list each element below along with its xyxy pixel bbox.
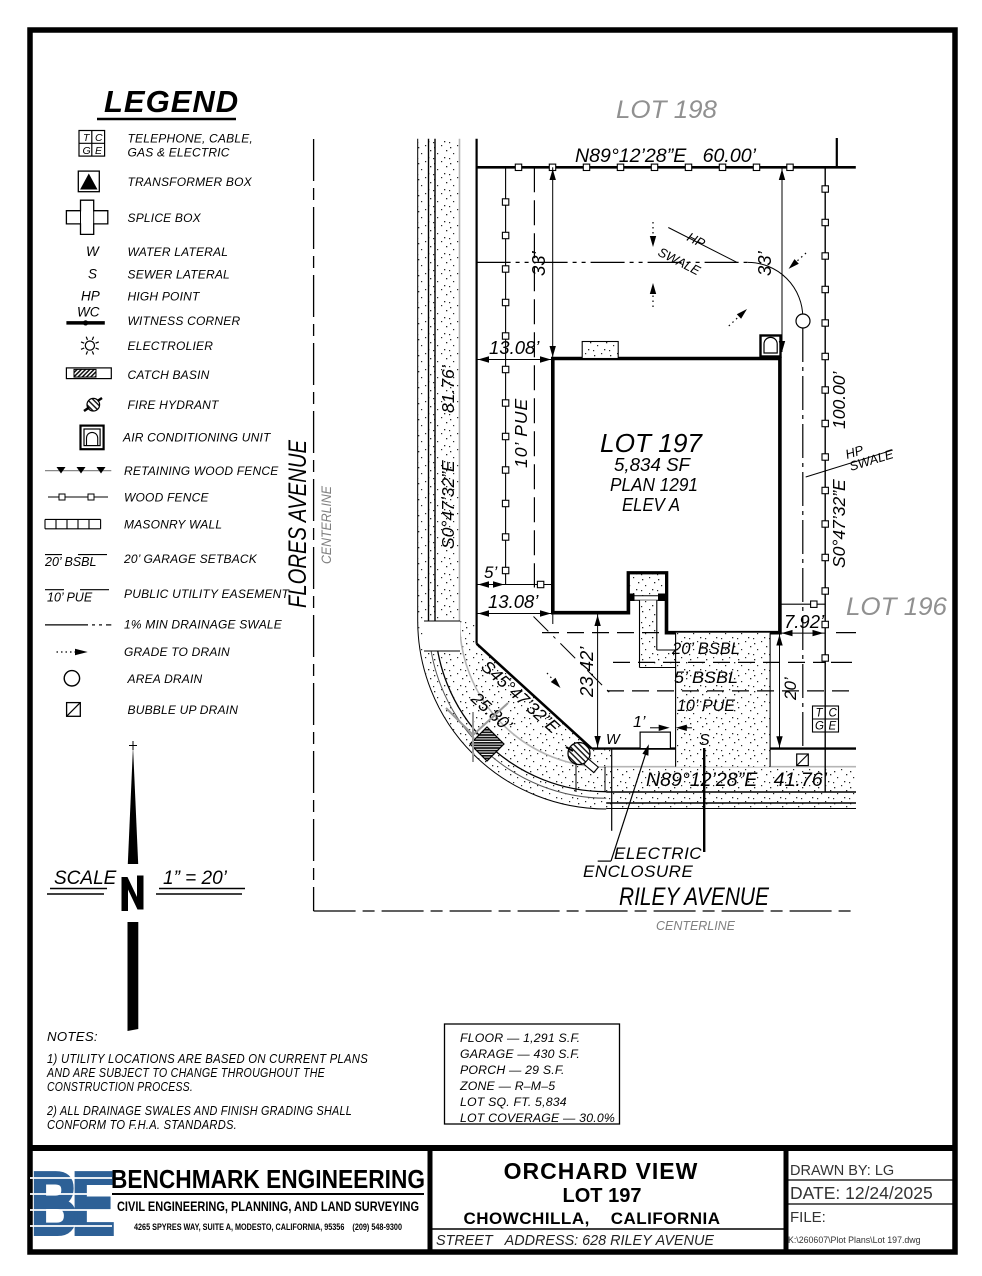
svg-text:CENTERLINE: CENTERLINE xyxy=(319,485,334,564)
svg-text:PORCH — 29 S.F.: PORCH — 29 S.F. xyxy=(460,1063,565,1077)
svg-text:GRADE TO DRAIN: GRADE TO DRAIN xyxy=(124,645,230,659)
svg-text:4265 SPYRES WAY, SUITE A, MODE: 4265 SPYRES WAY, SUITE A, MODESTO, CALIF… xyxy=(134,1222,402,1233)
svg-text:S: S xyxy=(88,267,97,282)
svg-text:LOT COVERAGE — 30.0%: LOT COVERAGE — 30.0% xyxy=(460,1111,615,1125)
svg-text:DATE: 12/24/2025: DATE: 12/24/2025 xyxy=(790,1183,933,1203)
svg-text:BUBBLE UP DRAIN: BUBBLE UP DRAIN xyxy=(128,703,239,717)
svg-text:NOTES:: NOTES: xyxy=(47,1029,98,1044)
svg-text:13.08’: 13.08’ xyxy=(488,591,539,612)
svg-text:7.92’: 7.92’ xyxy=(784,611,825,632)
svg-text:BE: BE xyxy=(31,1154,113,1253)
svg-text:TELEPHONE, CABLE,: TELEPHONE, CABLE, xyxy=(128,132,253,146)
svg-text:TRANSFORMER BOX: TRANSFORMER BOX xyxy=(128,175,253,189)
svg-text:1% MIN DRAINAGE SWALE: 1% MIN DRAINAGE SWALE xyxy=(124,618,283,632)
svg-text:ELEV A: ELEV A xyxy=(622,494,680,515)
svg-text:FILE:: FILE: xyxy=(790,1209,826,1226)
svg-text:81.76’: 81.76’ xyxy=(438,364,458,413)
svg-text:S0°47’32”E: S0°47’32”E xyxy=(438,460,458,549)
svg-text:S0°47’32”E: S0°47’32”E xyxy=(829,479,849,568)
svg-text:LOT 196: LOT 196 xyxy=(846,593,947,621)
svg-text:1” = 20’: 1” = 20’ xyxy=(163,868,228,889)
svg-text:N89°12’28”E 60.00’: N89°12’28”E 60.00’ xyxy=(575,146,757,167)
svg-text:ORCHARD VIEW: ORCHARD VIEW xyxy=(504,1158,699,1184)
svg-text:LOT 197: LOT 197 xyxy=(563,1185,642,1207)
svg-text:1) UTILITY LOCATIONS ARE B: 1) UTILITY LOCATIONS ARE BASED ON CURREN… xyxy=(47,1051,368,1066)
svg-text:PLAN 1291: PLAN 1291 xyxy=(610,474,698,495)
svg-text:E: E xyxy=(95,145,103,157)
svg-text:WOOD FENCE: WOOD FENCE xyxy=(124,491,209,505)
svg-text:WC: WC xyxy=(77,305,100,320)
svg-text:BENCHMARK ENGINEERING: BENCHMARK ENGINEERING xyxy=(111,1166,425,1194)
svg-text:RETAINING WOOD FENCE: RETAINING WOOD FENCE xyxy=(124,464,279,478)
svg-text:33’: 33’ xyxy=(754,250,775,276)
svg-text:20’: 20’ xyxy=(781,677,800,701)
svg-text:20’ BSBL: 20’ BSBL xyxy=(671,639,740,658)
svg-text:100.00’: 100.00’ xyxy=(829,370,849,429)
svg-text:W: W xyxy=(86,244,100,259)
svg-text:W: W xyxy=(606,732,621,748)
svg-text:K:\260607\Plot Plans\Lot 197: K:\260607\Plot Plans\Lot 197.dwg xyxy=(788,1235,921,1245)
svg-text:10’ PUE: 10’ PUE xyxy=(511,398,531,468)
svg-text:GARAGE — 430 S.F.: GARAGE — 430 S.F. xyxy=(460,1047,580,1061)
svg-text:SEWER LATERAL: SEWER LATERAL xyxy=(128,268,230,282)
svg-text:CONSTRUCTION PROCESS.: CONSTRUCTION PROCESS. xyxy=(47,1079,193,1094)
svg-text:FLOOR — 1,291 S.F.: FLOOR — 1,291 S.F. xyxy=(460,1031,580,1045)
svg-text:S: S xyxy=(699,732,710,749)
svg-text:AREA DRAIN: AREA DRAIN xyxy=(127,672,203,686)
svg-text:AND ARE SUBJECT TO CHANGE: AND ARE SUBJECT TO CHANGE THROUGHOUT THE xyxy=(46,1065,325,1080)
svg-text:HP: HP xyxy=(81,289,100,304)
svg-text:DRAWN BY: LG: DRAWN BY: LG xyxy=(790,1163,894,1179)
svg-text:PUBLIC UTILITY EASEMENT: PUBLIC UTILITY EASEMENT xyxy=(124,587,291,601)
svg-text:N89°12’28”E 41.76’: N89°12’28”E 41.76’ xyxy=(646,770,828,791)
svg-text:WITNESS CORNER: WITNESS CORNER xyxy=(128,314,241,328)
svg-text:FLORES AVENUE: FLORES AVENUE xyxy=(284,440,312,608)
svg-text:SCALE: SCALE xyxy=(54,868,117,889)
svg-text:AIR CONDITIONING UNIT: AIR CONDITIONING UNIT xyxy=(122,431,272,445)
svg-text:WATER LATERAL: WATER LATERAL xyxy=(128,245,229,259)
svg-text:13.08’: 13.08’ xyxy=(489,337,540,358)
svg-text:SPLICE BOX: SPLICE BOX xyxy=(128,211,202,225)
svg-text:CENTERLINE: CENTERLINE xyxy=(656,918,735,933)
svg-text:LOT SQ. FT. 5,834: LOT SQ. FT. 5,834 xyxy=(460,1095,567,1109)
svg-text:ENCLOSURE: ENCLOSURE xyxy=(583,862,693,881)
svg-text:33’: 33’ xyxy=(528,250,549,276)
svg-text:23.42’: 23.42’ xyxy=(576,646,597,698)
svg-text:ZONE — R–M–5: ZONE — R–M–5 xyxy=(459,1079,555,1093)
svg-text:ELECTROLIER: ELECTROLIER xyxy=(128,339,214,353)
svg-text:10’ PUE: 10’ PUE xyxy=(47,591,93,605)
svg-text:CHOWCHILLA, CALIFORNIA: CHOWCHILLA, CALIFORNIA xyxy=(463,1209,720,1228)
svg-text:C: C xyxy=(829,708,838,720)
svg-text:RILEY AVENUE: RILEY AVENUE xyxy=(619,883,769,911)
svg-text:CATCH BASIN: CATCH BASIN xyxy=(128,368,210,382)
svg-text:LEGEND: LEGEND xyxy=(104,84,239,119)
svg-text:MASONRY WALL: MASONRY WALL xyxy=(124,518,222,532)
svg-text:CONFORM TO F.H.A. STANDARDS: CONFORM TO F.H.A. STANDARDS. xyxy=(47,1117,237,1132)
svg-text:5’: 5’ xyxy=(484,563,497,582)
svg-text:G: G xyxy=(815,721,824,733)
svg-text:C: C xyxy=(95,132,103,144)
svg-text:HIGH POINT: HIGH POINT xyxy=(128,290,201,304)
svg-text:FIRE HYDRANT: FIRE HYDRANT xyxy=(128,398,221,412)
svg-text:5’ BSBL: 5’ BSBL xyxy=(674,668,738,687)
svg-text:CIVIL ENGINEERING, PLANNING, A: CIVIL ENGINEERING, PLANNING, AND LAND SU… xyxy=(117,1199,419,1214)
svg-text:G: G xyxy=(83,145,91,157)
svg-text:T: T xyxy=(816,708,824,720)
svg-text:10’ PUE: 10’ PUE xyxy=(677,696,736,715)
svg-text:1’: 1’ xyxy=(633,714,646,731)
svg-text:ELECTRIC: ELECTRIC xyxy=(614,844,702,863)
svg-text:GAS & ELECTRIC: GAS & ELECTRIC xyxy=(128,146,230,160)
svg-text:E: E xyxy=(829,721,837,733)
svg-text:LOT 198: LOT 198 xyxy=(616,96,717,124)
svg-text:20’ GARAGE SETBACK: 20’ GARAGE SETBACK xyxy=(123,552,258,566)
svg-text:20’ BSBL: 20’ BSBL xyxy=(44,555,96,569)
svg-text:STREET ADDRESS: 628 RILEY AV: STREET ADDRESS: 628 RILEY AVENUE xyxy=(436,1232,715,1249)
svg-text:2) ALL DRAINAGE SWALES AND: 2) ALL DRAINAGE SWALES AND FINISH GRADIN… xyxy=(46,1103,352,1118)
svg-text:5,834 SF: 5,834 SF xyxy=(614,454,692,475)
